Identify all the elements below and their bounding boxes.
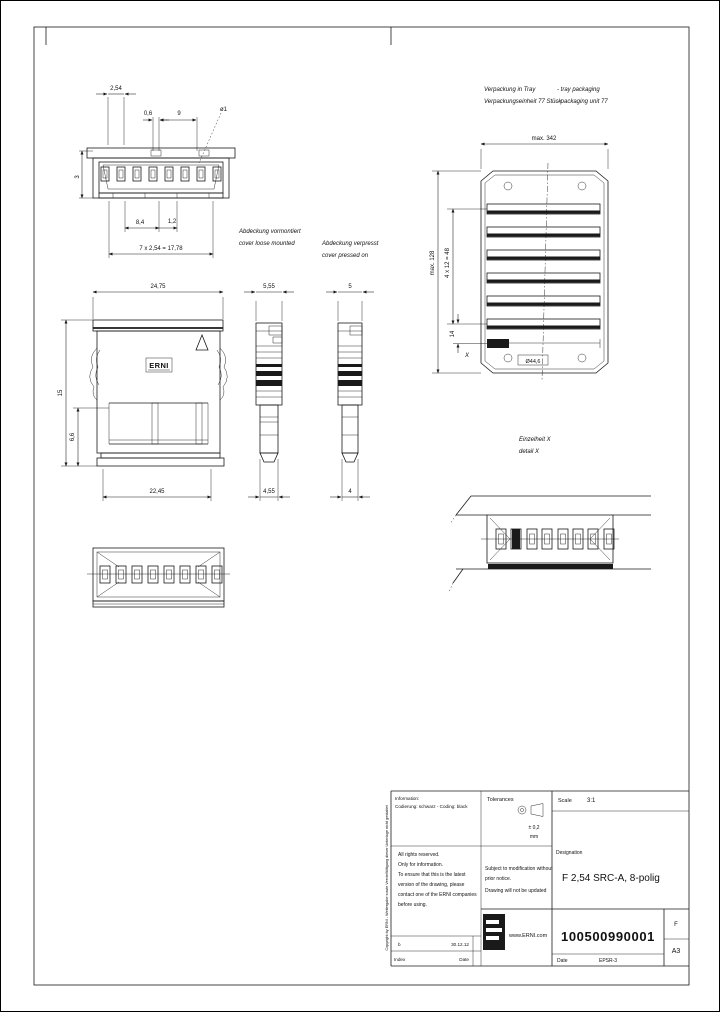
tray-unit-de: Verpackungseinheit 77 Stück	[484, 99, 562, 105]
dim-wbot: 22,45	[149, 489, 165, 495]
tb-mod-1: Subject to modification without	[485, 866, 553, 872]
note-loose-de: Abdeckung vormontiert	[238, 229, 301, 235]
tb-rights-4: version of the drawing, please	[398, 882, 465, 888]
tb-field2-label: Index	[394, 957, 406, 962]
view-front-main: ERNI 24,75 22,45 15 6,6	[58, 284, 227, 501]
tb-mod-3: Drawing will not be updated	[485, 888, 547, 894]
note-cover-loose: Abdeckung vormontiert cover loose mounte…	[238, 229, 301, 247]
tray-title-en: - tray packaging	[557, 87, 600, 93]
title-block: Information: Codierung: schwarz - Coding…	[385, 791, 689, 966]
detail-label-de: Einzelheit X	[519, 437, 552, 443]
tb-rights-5: contact one of the ERNI companies	[398, 892, 477, 898]
view-side-loose: 5,55 4,55	[244, 284, 294, 501]
tb-designation-value: F 2,54 SRC-A, 8-polig	[562, 873, 660, 884]
dim-three: 3	[75, 175, 81, 179]
detail-marker-x: X	[464, 353, 470, 359]
dim-h66: 6,6	[70, 432, 76, 441]
tb-scale-value: 3:1	[587, 798, 596, 804]
tb-copyright-vertical: Copyright by ERNI - Weitergabe sowie Ver…	[385, 804, 389, 950]
dim-wtop: 24,75	[150, 284, 166, 290]
drawing-canvas: 2,54 0,6 9 ø1 3 8,4 1,2 7 x 2,54 = 17,78…	[1, 1, 720, 1012]
tb-rights-3: To ensure that this is the latest	[398, 872, 466, 878]
tb-tolerances-label: Tolerances	[487, 797, 514, 803]
dim-4: 4	[348, 489, 352, 495]
note-pressed-en: cover pressed on	[322, 253, 369, 259]
dim-gap: 0,6	[144, 111, 153, 117]
dim-h15: 15	[58, 389, 64, 396]
view-bottom	[87, 548, 230, 607]
view-detail-x: Einzelheit X detail X	[449, 437, 651, 592]
tb-rights-6: before using.	[398, 902, 427, 908]
view-side-pressed: 5 4	[326, 284, 374, 501]
tb-date-label: Date	[557, 958, 568, 964]
dim-tray-14: 14	[450, 330, 456, 337]
tb-tolerances-unit: mm	[530, 834, 538, 840]
tb-field1-value: 30.12.12	[451, 942, 469, 947]
view-front-top: 2,54 0,6 9 ø1 3 8,4 1,2 7 x 2,54 = 17,78	[75, 86, 235, 258]
dim-tray-pocket: Ø44,6	[526, 359, 541, 365]
tb-mod-2: prior notice.	[485, 876, 511, 882]
note-cover-pressed: Abdeckung verpresst cover pressed on	[321, 241, 379, 259]
tb-info-line2: Codierung: schwarz - Coding: black	[395, 804, 468, 809]
dim-dia: ø1	[220, 107, 228, 113]
drawing-sheet: 2,54 0,6 9 ø1 3 8,4 1,2 7 x 2,54 = 17,78…	[0, 0, 720, 1012]
dim-12: 1,2	[168, 219, 177, 225]
tb-rights-2: Only for information.	[398, 862, 443, 868]
tb-scale-label: Scale	[558, 798, 572, 804]
note-loose-en: cover loose mounted	[239, 241, 295, 247]
tb-designation-label: Designation	[556, 850, 583, 856]
tb-info-line1: Information:	[395, 796, 419, 801]
tb-field2-value: Date	[459, 957, 469, 962]
tb-format: A3	[672, 948, 681, 955]
tray-title-de: Verpackung in Tray	[484, 87, 536, 93]
detail-label-en: detail X	[519, 449, 540, 455]
dim-455: 4,55	[263, 489, 275, 495]
dim-nine: 9	[177, 111, 181, 117]
erni-logo	[483, 914, 505, 950]
tb-field1-label: b	[398, 942, 401, 947]
dim-total: 7 x 2,54 = 17,78	[139, 246, 183, 252]
tb-date-value: EPSR-3	[599, 958, 617, 964]
projection-symbol-icon	[518, 804, 543, 817]
dim-pitch: 2,54	[110, 86, 122, 92]
tb-sheet-letter: F	[674, 922, 678, 928]
dim-tray-h: max. 128	[430, 250, 436, 275]
tb-website: www.ERNI.com	[508, 933, 548, 939]
tb-part-number: 100500990001	[561, 929, 655, 944]
erni-logo-front: ERNI	[149, 361, 169, 370]
view-tray: Verpackung in Tray - tray packaging Verp…	[430, 87, 608, 381]
note-pressed-de: Abdeckung verpresst	[321, 241, 379, 247]
dim-tray-w: max. 342	[532, 136, 557, 142]
dim-5: 5	[348, 284, 352, 290]
dim-84: 8,4	[136, 220, 145, 226]
dim-555: 5,55	[263, 284, 275, 290]
tray-unit-en: - packaging unit 77	[557, 99, 608, 105]
tb-rights-1: All rights reserved.	[398, 852, 439, 858]
dim-tray-rows: 4 x 12 = 48	[445, 247, 451, 278]
tb-tolerances-value: ± 0,2	[528, 825, 539, 831]
